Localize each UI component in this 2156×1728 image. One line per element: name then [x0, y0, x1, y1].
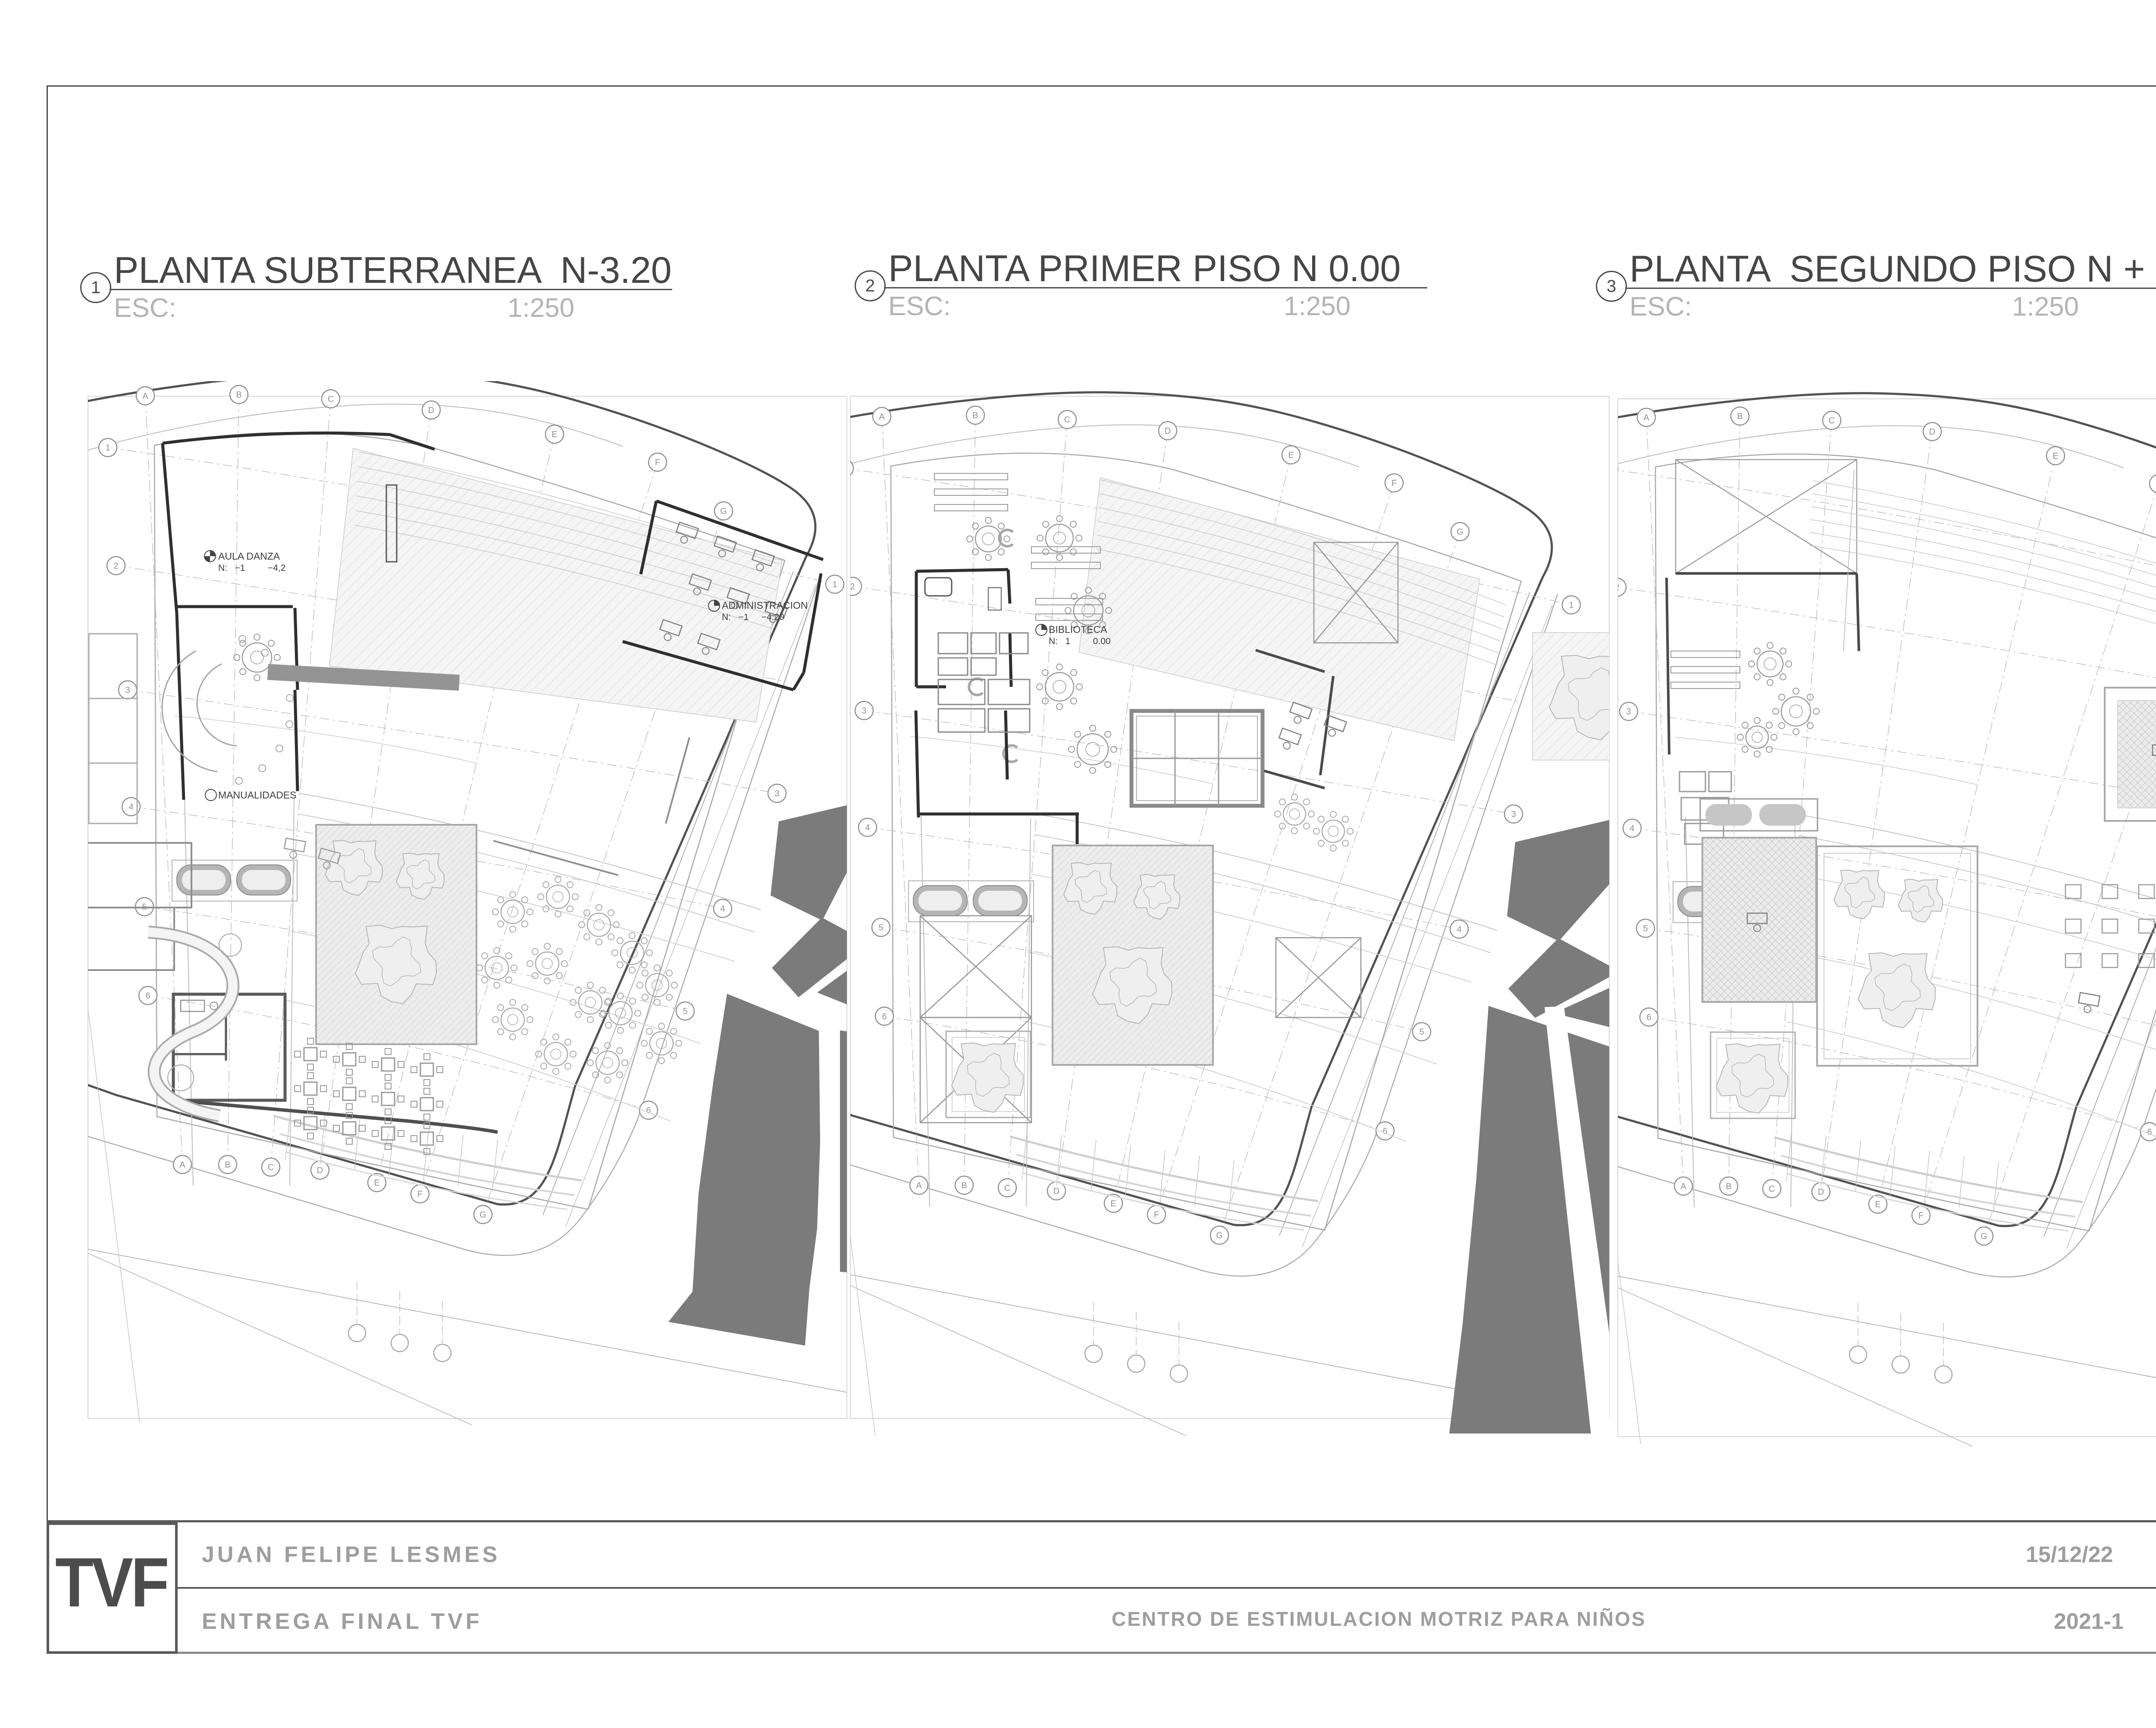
svg-text:F: F — [1391, 479, 1397, 488]
svg-text:4: 4 — [720, 904, 725, 914]
svg-text:2: 2 — [850, 582, 855, 592]
svg-text:A: A — [879, 412, 885, 422]
svg-text:G: G — [479, 1210, 486, 1220]
svg-text:6: 6 — [646, 1106, 651, 1115]
svg-text:6: 6 — [2147, 1127, 2152, 1137]
svg-text:E: E — [1288, 451, 1294, 460]
svg-text:E: E — [552, 430, 557, 439]
svg-text:N: −1 −4,2: N: −1 −4,2 — [218, 563, 285, 573]
svg-text:A: A — [1680, 1182, 1686, 1191]
svg-text:D: D — [317, 1166, 323, 1175]
svg-text:G: G — [720, 507, 727, 516]
svg-text:6: 6 — [1646, 1013, 1651, 1022]
svg-text:B: B — [1737, 412, 1742, 421]
svg-text:3: 3 — [862, 706, 866, 716]
svg-text:4: 4 — [1457, 925, 1461, 934]
svg-text:6: 6 — [1382, 1127, 1387, 1136]
svg-text:D: D — [1053, 1186, 1059, 1196]
svg-text:B: B — [225, 1160, 230, 1170]
svg-text:B: B — [972, 411, 978, 420]
svg-text:AULA DANZA: AULA DANZA — [218, 551, 280, 562]
svg-text:A: A — [179, 1160, 185, 1170]
svg-text:F: F — [655, 458, 660, 467]
svg-text:4: 4 — [1630, 824, 1634, 833]
svg-text:C: C — [1004, 1183, 1010, 1193]
svg-text:C: C — [328, 394, 334, 404]
svg-text:1: 1 — [1569, 601, 1573, 610]
svg-text:1: 1 — [832, 580, 837, 589]
svg-text:E: E — [2053, 451, 2058, 461]
svg-text:5: 5 — [683, 1007, 687, 1016]
svg-text:D: D — [1165, 426, 1171, 436]
svg-text:2: 2 — [113, 561, 118, 571]
svg-text:ADMINISTRACION: ADMINISTRACION — [722, 600, 808, 611]
svg-text:D: D — [428, 406, 434, 415]
svg-text:3: 3 — [1511, 810, 1516, 819]
svg-text:1: 1 — [842, 464, 846, 473]
svg-text:E: E — [1875, 1200, 1880, 1209]
svg-text:G: G — [1981, 1232, 1987, 1241]
svg-text:D: D — [1818, 1187, 1824, 1197]
svg-text:B: B — [1726, 1182, 1731, 1191]
svg-text:6: 6 — [882, 1012, 887, 1021]
svg-text:C: C — [1829, 416, 1835, 426]
svg-text:F: F — [1154, 1210, 1159, 1220]
svg-text:A: A — [916, 1181, 922, 1190]
svg-text:A: A — [142, 391, 148, 401]
svg-text:6: 6 — [145, 991, 150, 1001]
svg-text:4: 4 — [128, 802, 133, 812]
svg-text:B: B — [236, 390, 241, 400]
svg-text:D: D — [1929, 427, 1935, 437]
svg-text:C: C — [1064, 415, 1070, 425]
svg-text:MANUALIDADES: MANUALIDADES — [218, 789, 296, 801]
svg-text:2: 2 — [1614, 583, 1619, 592]
svg-text:G: G — [1457, 527, 1463, 537]
svg-text:E: E — [374, 1178, 379, 1188]
svg-text:1: 1 — [105, 443, 110, 453]
svg-text:F: F — [417, 1190, 423, 1199]
svg-text:N: 1 0.00: N: 1 0.00 — [1049, 636, 1111, 646]
svg-text:3: 3 — [1626, 707, 1631, 717]
svg-text:N: −1 −4.20: N: −1 −4.20 — [722, 612, 784, 622]
svg-text:E: E — [1110, 1199, 1116, 1208]
svg-text:5: 5 — [1643, 924, 1648, 933]
svg-text:C: C — [268, 1163, 274, 1172]
svg-text:3: 3 — [774, 789, 779, 798]
svg-text:4: 4 — [865, 823, 870, 833]
svg-text:BIBLIOTECA: BIBLIOTECA — [1049, 624, 1107, 635]
svg-text:C: C — [1769, 1184, 1775, 1194]
svg-text:3: 3 — [125, 686, 130, 695]
svg-text:F: F — [1918, 1211, 1924, 1221]
svg-text:5: 5 — [878, 923, 883, 933]
svg-text:5: 5 — [1419, 1027, 1424, 1037]
svg-text:B: B — [961, 1181, 967, 1190]
svg-text:G: G — [1216, 1231, 1223, 1240]
svg-text:A: A — [1643, 413, 1649, 423]
